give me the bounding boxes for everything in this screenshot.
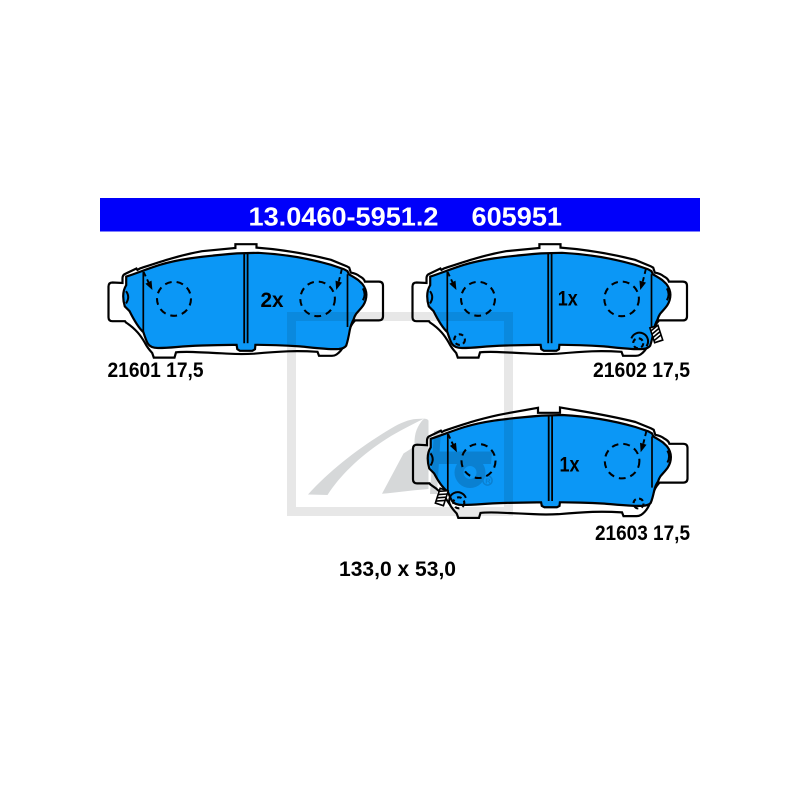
svg-text:1x: 1x (560, 453, 580, 477)
svg-text:21602 17,5: 21602 17,5 (593, 358, 690, 382)
svg-text:133,0 x 53,0: 133,0 x 53,0 (339, 557, 456, 581)
svg-text:605951: 605951 (472, 202, 563, 232)
svg-text:R: R (485, 477, 491, 486)
svg-text:21601 17,5: 21601 17,5 (108, 358, 204, 382)
svg-text:13.0460-5951.2: 13.0460-5951.2 (249, 202, 439, 232)
svg-text:21603 17,5: 21603 17,5 (595, 521, 690, 545)
svg-text:2x: 2x (261, 288, 284, 312)
svg-text:1x: 1x (558, 286, 578, 310)
